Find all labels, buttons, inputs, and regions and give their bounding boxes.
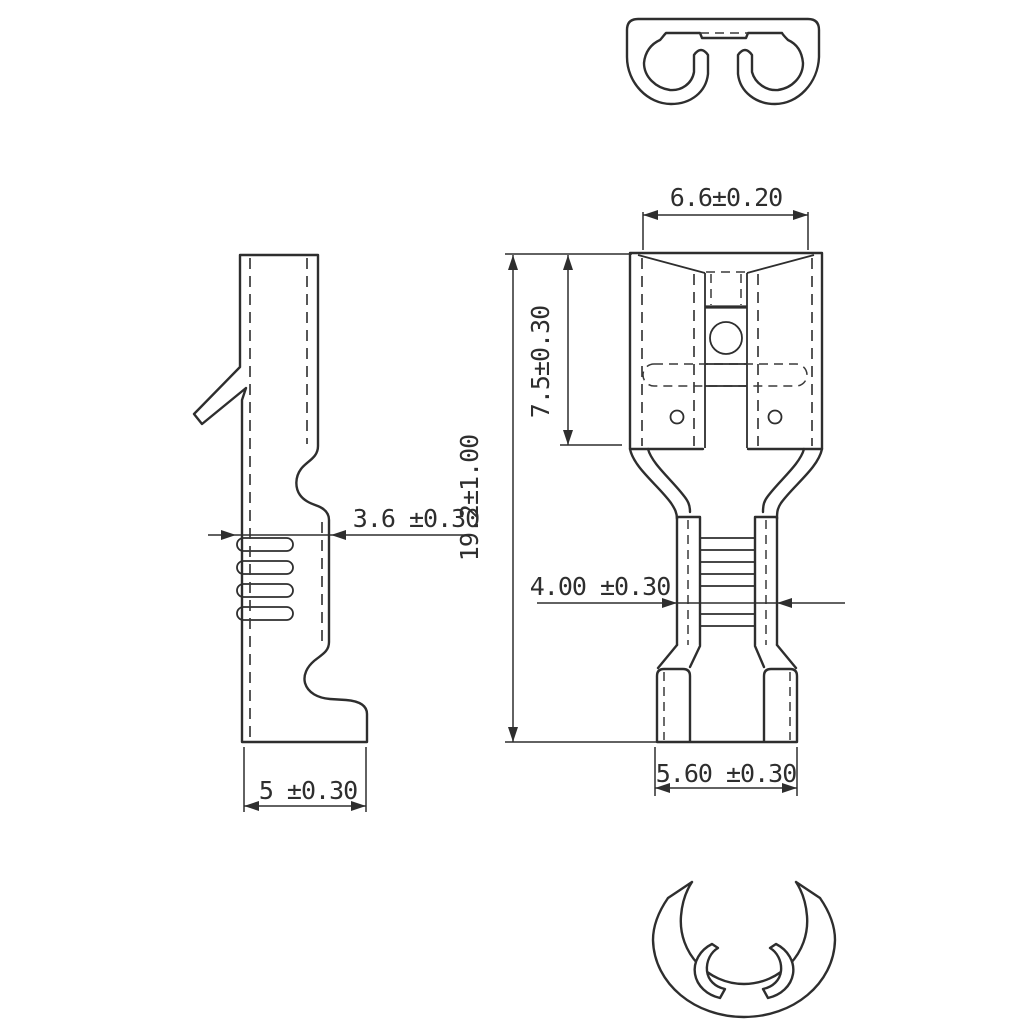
front-center-channel (705, 273, 747, 448)
front-channel-hidden (706, 272, 746, 305)
dimension-arrow-right (777, 598, 792, 608)
dimension-contact-length: 7.5±0.30 (526, 255, 622, 445)
front-top-chamfers (638, 255, 814, 273)
dim-label-insulation-crimp-width: 5.60 ±0.30 (656, 759, 797, 788)
side-profile-outline (194, 255, 367, 742)
dim-label-overall-length: 19.2±1.00 (455, 435, 484, 561)
dimension-arrow-left (244, 801, 259, 811)
dimension-arrow-left (221, 530, 236, 540)
bottom-ring-outline (653, 882, 835, 1017)
dim-label-side-bottom-depth: 5 ±0.30 (259, 776, 357, 805)
dimension-arrow-left (643, 210, 658, 220)
top-cross-section-view (627, 19, 819, 104)
front-side-dimple-left (671, 411, 684, 424)
dimension-arrow-bottom (508, 727, 518, 742)
front-crimp-serrations (700, 538, 755, 626)
serration-rib (237, 607, 293, 620)
front-dimple-hole (710, 322, 742, 354)
dimension-arrow-right (331, 530, 346, 540)
dim-label-contact-length: 7.5±0.30 (526, 306, 555, 418)
front-hidden-walls (642, 258, 812, 446)
front-funnel (630, 449, 822, 519)
dimension-arrow-top (563, 255, 573, 270)
dimension-side-bottom-depth: 5 ±0.30 (244, 747, 366, 812)
front-insulation-crimp (657, 645, 797, 742)
front-insulation-centerlines (664, 672, 790, 740)
dim-label-wire-crimp-width: 4.00 ±0.30 (530, 572, 671, 601)
side-serration-ribs (237, 538, 293, 620)
dimension-wire-crimp-width: 4.00 ±0.30 (530, 572, 845, 608)
dim-label-blade-width: 6.6±0.20 (670, 183, 782, 212)
front-slot-solid-band (705, 364, 747, 386)
dimension-extension-lines (643, 212, 808, 250)
bottom-cross-section-view (653, 882, 835, 1017)
technical-drawing-canvas: 6.6±0.20 7.5±0.30 19.2±1.00 3.6 ±0.30 4.… (0, 0, 1024, 1024)
serration-rib (237, 561, 293, 574)
dimension-insulation-crimp-width: 5.60 ±0.30 (655, 747, 797, 796)
bottom-ring-prong-right (763, 944, 793, 998)
serration-rib (237, 584, 293, 597)
front-side-dimple-right (769, 411, 782, 424)
serration-rib (237, 538, 293, 551)
front-view (630, 253, 822, 742)
dim-label-side-crimp-thickness: 3.6 ±0.30 (353, 504, 479, 533)
front-box-outline (630, 253, 822, 449)
top-section-outline (627, 19, 819, 104)
dimension-arrow-right (793, 210, 808, 220)
dimension-arrow-top (508, 255, 518, 270)
front-slot-hidden (643, 364, 807, 386)
dimension-side-crimp-thickness: 3.6 ±0.30 (208, 504, 479, 540)
side-profile-view (194, 255, 367, 742)
bottom-ring-prong-left (695, 944, 725, 998)
dimension-arrow-bottom (563, 430, 573, 445)
dimension-blade-width: 6.6±0.20 (643, 183, 808, 250)
